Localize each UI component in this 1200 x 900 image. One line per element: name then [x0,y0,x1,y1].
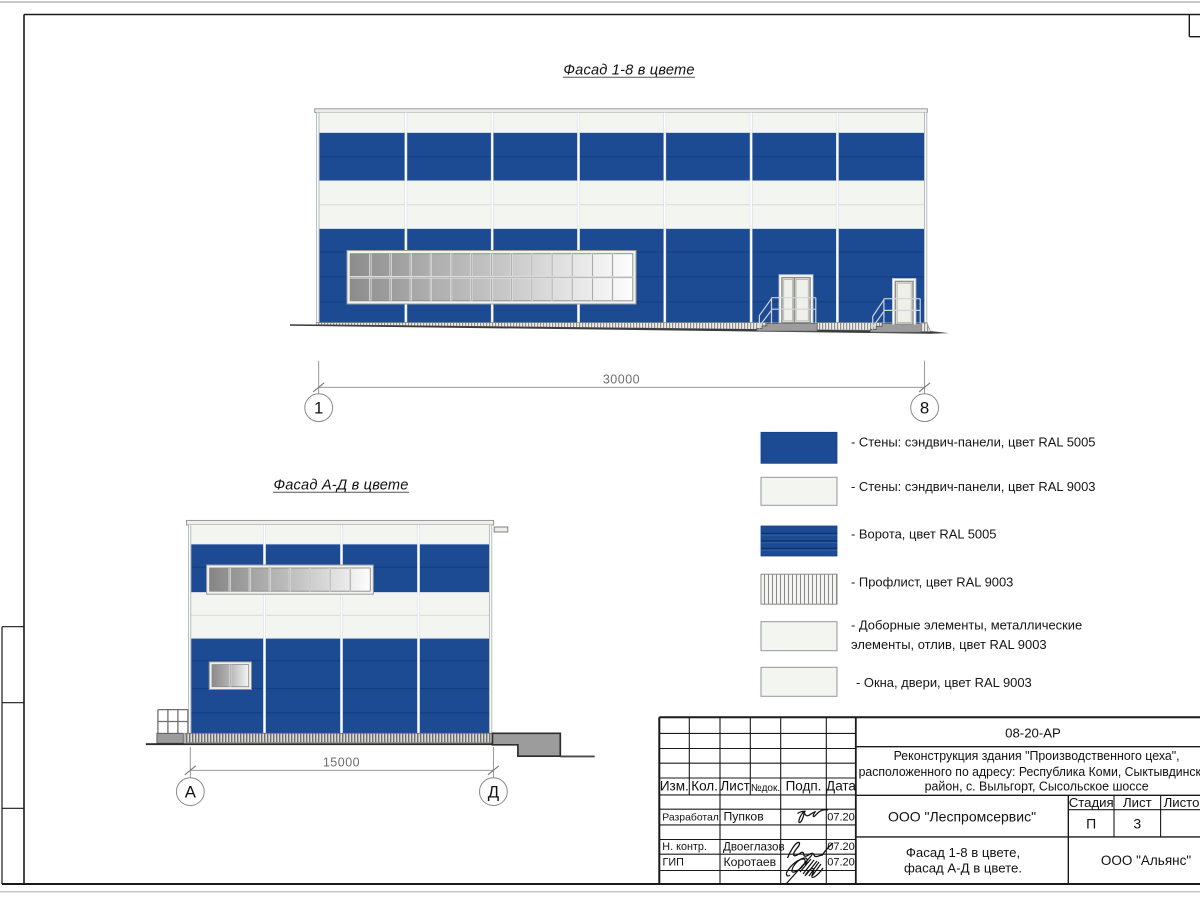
svg-text:15000: 15000 [323,756,360,770]
svg-text:Фасад 1-8 в цвете: Фасад 1-8 в цвете [563,63,694,79]
svg-text:ООО "Альянс": ООО "Альянс" [1101,853,1191,868]
svg-text:П: П [1086,816,1096,832]
svg-text:- Профлист, цвет RAL 9003: - Профлист, цвет RAL 9003 [851,575,1013,590]
svg-text:Подп.: Подп. [786,779,822,794]
svg-text:фасад А-Д в цвете.: фасад А-Д в цвете. [904,860,1022,875]
svg-text:элементы, отлив, цвет RAL 9003: элементы, отлив, цвет RAL 9003 [851,637,1047,652]
svg-text:Разработал: Разработал [662,811,719,823]
svg-text:Изм.: Изм. [660,779,689,794]
svg-text:ГИП: ГИП [663,857,684,869]
svg-text:3: 3 [1133,816,1141,832]
svg-text:07.20: 07.20 [827,811,855,823]
svg-text:- Окна, двери, цвет RAL 9003: - Окна, двери, цвет RAL 9003 [856,675,1032,690]
svg-text:Д: Д [488,783,500,802]
svg-text:30000: 30000 [603,373,640,387]
svg-text:расположенного по адресу: Респ: расположенного по адресу: Республика Ком… [859,764,1200,779]
svg-text:- Ворота, цвет RAL 5005: - Ворота, цвет RAL 5005 [851,527,996,542]
svg-text:Дата: Дата [826,779,856,794]
svg-text:- Стены: сэндвич-панели, цвет: - Стены: сэндвич-панели, цвет RAL 5005 [851,435,1095,450]
svg-text:08-20-АР: 08-20-АР [1005,726,1061,741]
svg-text:07.20: 07.20 [827,841,855,853]
svg-text:Кол.: Кол. [691,779,718,794]
svg-text:А: А [185,783,197,802]
svg-text:ООО "Леспромсервис": ООО "Леспромсервис" [888,809,1036,825]
svg-text:Двоеглазов: Двоеглазов [723,841,785,854]
svg-text:- Доборные элементы, металличе: - Доборные элементы, металлические [851,618,1082,633]
svg-text:Фасад А-Д в цвете: Фасад А-Д в цвете [273,478,408,494]
svg-text:Листов: Листов [1164,795,1200,810]
svg-text:Коротаев: Коротаев [724,855,777,869]
svg-text:Лист: Лист [720,779,749,794]
svg-text:район, с. Выльгорт, Сысольское: район, с. Выльгорт, Сысольское шоссе [925,779,1149,794]
svg-text:8: 8 [920,399,929,418]
svg-text:№док.: №док. [751,783,780,794]
svg-text:Реконструкция здания "Производ: Реконструкция здания "Производственного … [894,748,1180,763]
svg-text:Лист: Лист [1123,795,1152,810]
svg-text:Пупков: Пупков [724,810,764,824]
svg-text:1: 1 [314,399,323,418]
svg-text:- Стены: сэндвич-панели, цвет: - Стены: сэндвич-панели, цвет RAL 9003 [851,479,1095,494]
svg-text:Фасад 1-8 в цвете,: Фасад 1-8 в цвете, [906,845,1020,860]
svg-text:Н. контр.: Н. контр. [662,841,707,853]
svg-text:07.20: 07.20 [827,857,855,869]
svg-text:Стадия: Стадия [1069,795,1114,810]
